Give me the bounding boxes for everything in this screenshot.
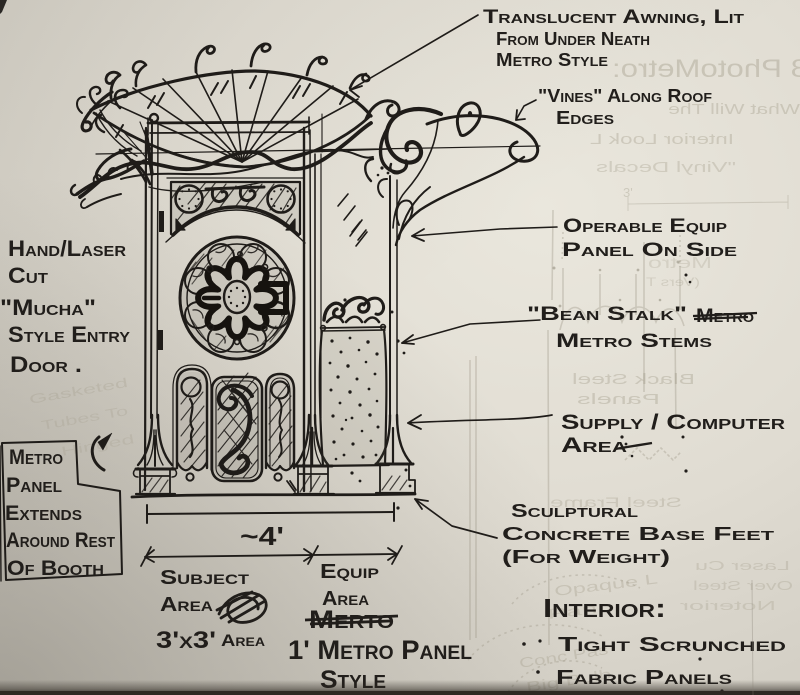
svg-text:1' Metro Panel: 1' Metro Panel	[288, 635, 472, 665]
svg-text:(For Weight): (For Weight)	[502, 547, 670, 567]
svg-text:Over Steel: Over Steel	[693, 578, 793, 593]
svg-text:Panels: Panels	[577, 391, 660, 408]
svg-text:3'x3': 3'x3'	[156, 627, 216, 654]
svg-text:Door .: Door .	[10, 352, 82, 377]
svg-text:Area: Area	[561, 434, 627, 457]
svg-text:Style Entry: Style Entry	[8, 322, 130, 347]
svg-text:Around Rest: Around Rest	[6, 529, 115, 552]
svg-text:Edges: Edges	[556, 108, 614, 128]
svg-text:Tight Scrunched: Tight Scrunched	[558, 634, 786, 656]
svg-text:"Vinyl Decals: "Vinyl Decals	[596, 159, 736, 176]
svg-text:Panel: Panel	[6, 474, 62, 497]
svg-text:Translucent Awning, Lit: Translucent Awning, Lit	[483, 7, 744, 28]
svg-text:Extends: Extends	[5, 502, 82, 525]
svg-text:Noterior: Noterior	[679, 598, 776, 613]
svg-text:Area: Area	[160, 594, 213, 616]
svg-text:Area: Area	[221, 631, 265, 650]
svg-text:"Vines" Along Roof: "Vines" Along Roof	[538, 86, 712, 106]
svg-text:Laser Cu: Laser Cu	[695, 558, 790, 573]
svg-text:~4': ~4'	[240, 521, 284, 551]
svg-text:"Bean Stalk": "Bean Stalk"	[527, 304, 687, 325]
svg-text:Panel On Side: Panel On Side	[562, 240, 737, 261]
svg-text:Metro Style: Metro Style	[496, 50, 608, 70]
svg-text:Metro: Metro	[9, 446, 63, 469]
svg-text:Subject: Subject	[160, 567, 250, 589]
svg-text:From Under Neath: From Under Neath	[496, 29, 650, 49]
svg-text:Concrete Base Feet: Concrete Base Feet	[502, 524, 774, 544]
svg-text:Equip: Equip	[320, 561, 379, 583]
svg-text:8 PhotoMetro:: 8 PhotoMetro:	[612, 55, 800, 83]
svg-text:"Mucha": "Mucha"	[0, 295, 96, 320]
svg-text:Supply / Computer: Supply / Computer	[561, 411, 785, 434]
svg-text:Hand/Laser: Hand/Laser	[8, 236, 126, 261]
svg-text:Of Booth: Of Booth	[7, 557, 104, 580]
svg-text:Black Steel: Black Steel	[572, 371, 695, 388]
svg-text:Interior Look L: Interior Look L	[590, 131, 734, 148]
svg-text:3': 3'	[623, 185, 633, 200]
svg-text:Interior:: Interior:	[543, 593, 666, 623]
svg-text:(Vers T: (Vers T	[645, 275, 700, 289]
svg-text:Operable Equip: Operable Equip	[563, 216, 727, 237]
svg-text:Metro Stems: Metro Stems	[556, 331, 712, 352]
svg-text:Cut: Cut	[8, 263, 48, 288]
svg-text:Sculptural: Sculptural	[511, 501, 638, 521]
